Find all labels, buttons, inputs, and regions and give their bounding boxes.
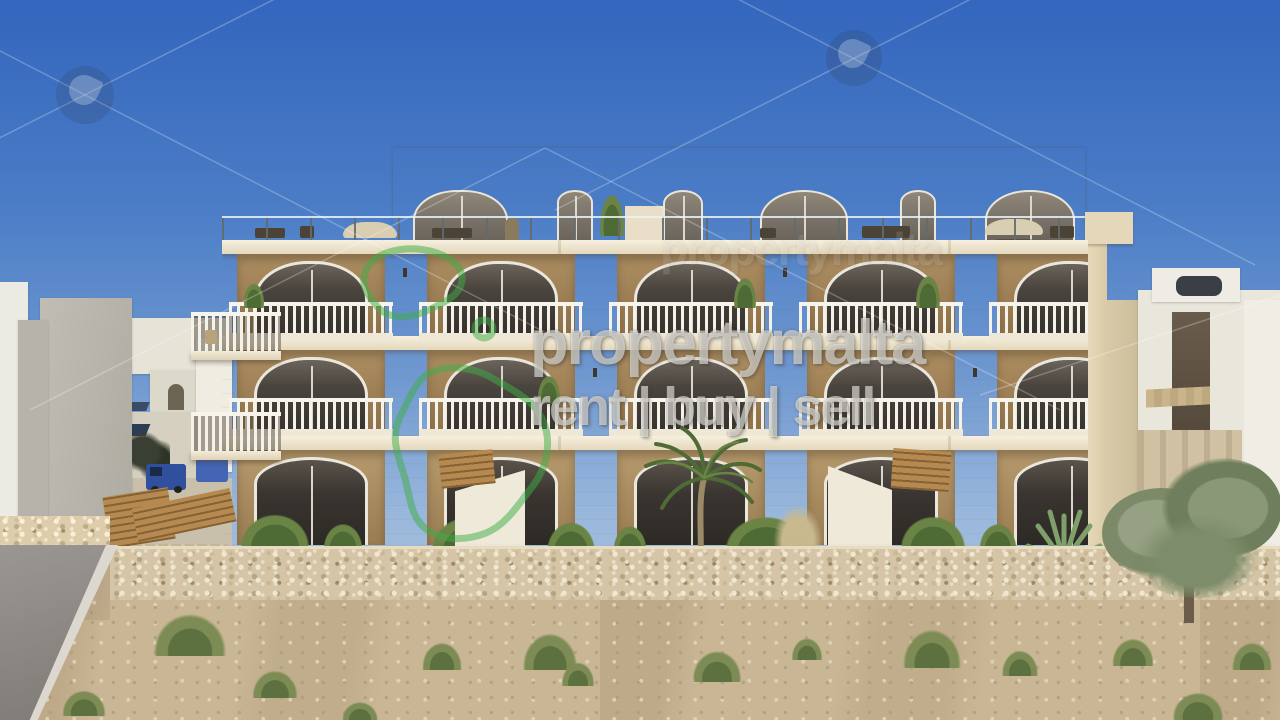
watermark-circle-logo: [56, 66, 114, 124]
watermark-overlay: propertymalta propertymalta rent | buy |…: [0, 0, 1280, 720]
watermark-circle-logo: [826, 30, 882, 86]
watermark-brand-text: propertymalta: [530, 312, 924, 375]
watermark-tagline-text: rent | buy | sell: [530, 380, 874, 434]
architectural-render-photo: propertymalta propertymalta rent | buy |…: [0, 0, 1280, 720]
watermark-brand-ghost: propertymalta: [660, 226, 941, 272]
